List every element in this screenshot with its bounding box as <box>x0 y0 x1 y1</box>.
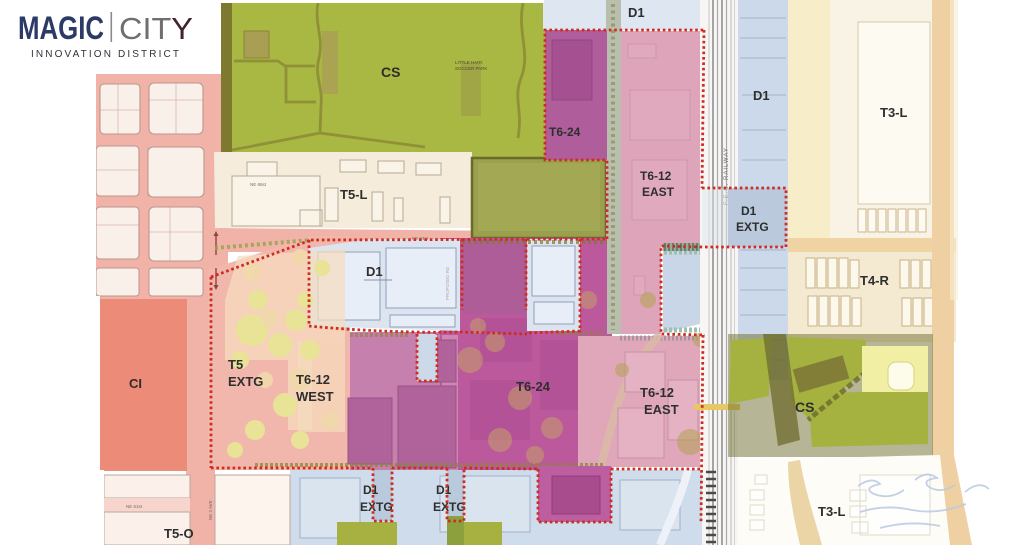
svg-text:T5-L: T5-L <box>340 187 368 202</box>
svg-text:D1: D1 <box>363 483 379 497</box>
svg-text:T5: T5 <box>228 357 243 372</box>
svg-text:NE 2 AVE: NE 2 AVE <box>208 500 213 520</box>
svg-text:EXTG: EXTG <box>736 220 769 234</box>
svg-text:D1: D1 <box>753 88 770 103</box>
svg-text:PROPOSED RD: PROPOSED RD <box>445 266 450 300</box>
svg-text:CS: CS <box>381 64 400 80</box>
svg-text:T4-R: T4-R <box>860 273 890 288</box>
svg-text:T6-24: T6-24 <box>516 379 551 394</box>
svg-text:CS: CS <box>795 399 814 415</box>
svg-text:T3-L: T3-L <box>818 504 846 519</box>
svg-text:WEST: WEST <box>296 389 334 404</box>
svg-text:T3-L: T3-L <box>880 105 908 120</box>
svg-text:T6-12: T6-12 <box>640 385 674 400</box>
svg-text:EXTG: EXTG <box>360 500 393 514</box>
svg-text:D1: D1 <box>628 5 645 20</box>
svg-text:D1: D1 <box>436 483 452 497</box>
svg-text:LITTLE HAITI: LITTLE HAITI <box>455 60 483 65</box>
svg-text:EAST: EAST <box>642 185 675 199</box>
svg-text:T6-12: T6-12 <box>296 372 330 387</box>
svg-text:T6-12: T6-12 <box>640 169 672 183</box>
svg-text:CITY: CITY <box>119 11 193 46</box>
svg-text:EXTG: EXTG <box>228 374 263 389</box>
svg-text:CI: CI <box>129 376 142 391</box>
svg-text:EAST: EAST <box>644 402 679 417</box>
svg-text:NE 65st: NE 65st <box>250 182 267 187</box>
svg-text:SOCCER PARK: SOCCER PARK <box>455 66 487 71</box>
svg-text:MAGIC: MAGIC <box>18 10 104 46</box>
svg-text:NE 61st: NE 61st <box>126 504 143 509</box>
svg-text:EXTG: EXTG <box>433 500 466 514</box>
svg-text:T6-24: T6-24 <box>549 125 581 139</box>
svg-text:D1: D1 <box>366 264 383 279</box>
svg-text:T5-O: T5-O <box>164 526 194 541</box>
svg-text:D1: D1 <box>741 204 757 218</box>
